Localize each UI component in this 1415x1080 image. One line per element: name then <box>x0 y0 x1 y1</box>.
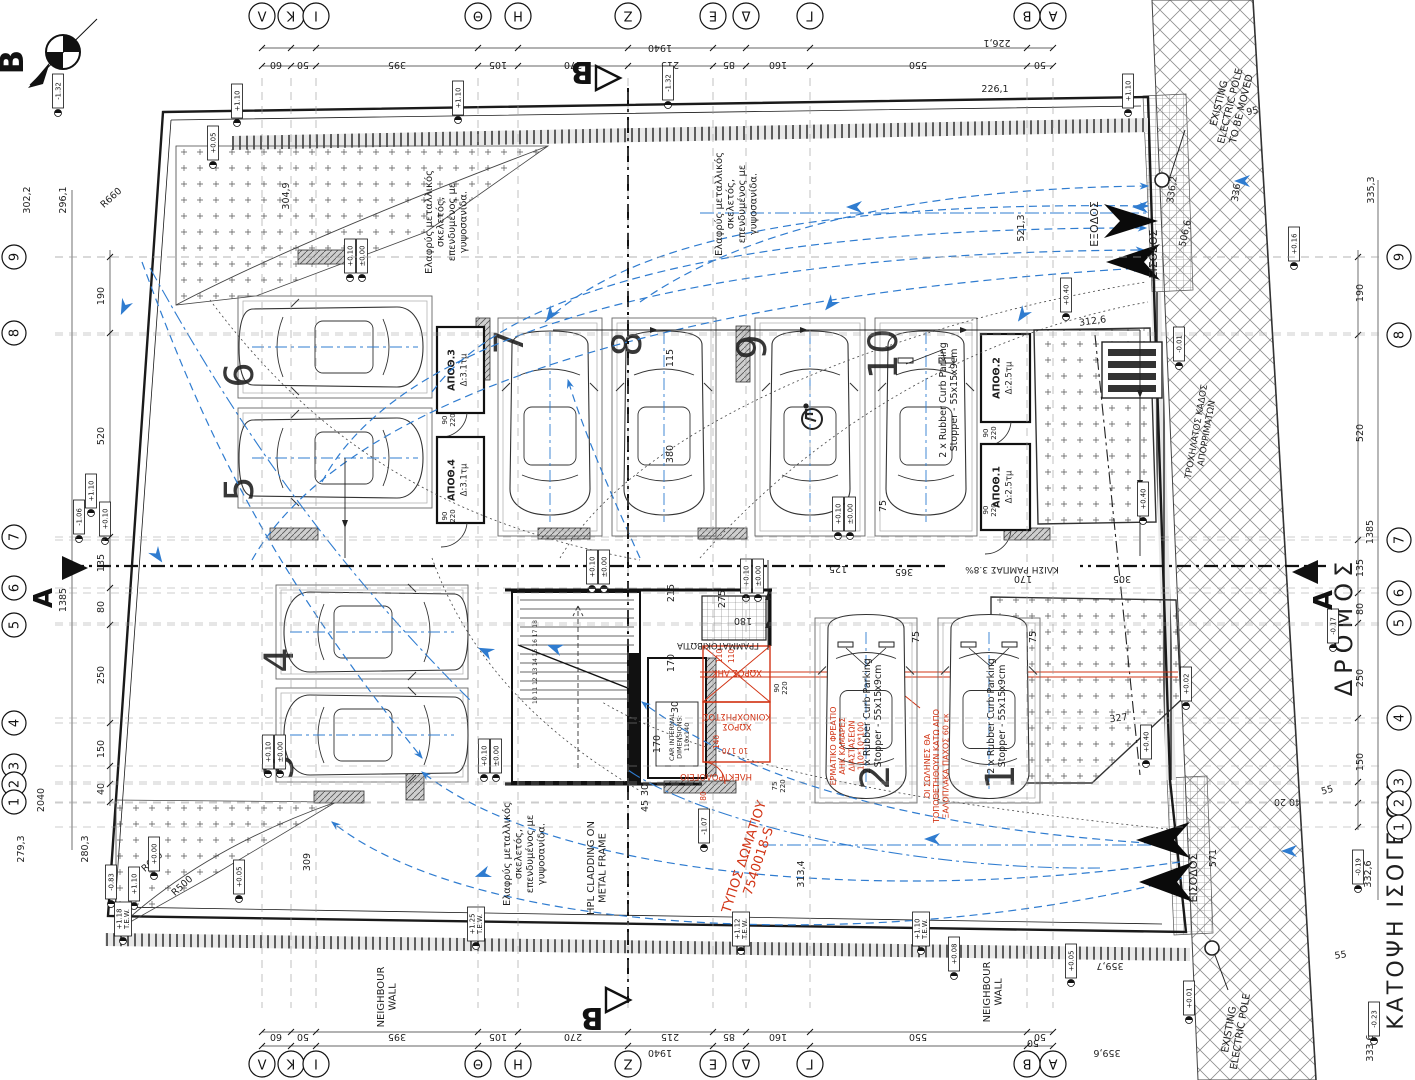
dim-label: 10 170 <box>722 746 748 755</box>
elevation-value: -1.32 <box>665 74 673 92</box>
grid-label-bottom: Γ <box>806 1056 814 1071</box>
grid-label-side: 8 <box>1393 331 1408 339</box>
dim-label: 309 <box>302 853 313 871</box>
elevation-value: +0.10 <box>743 566 751 587</box>
elevation-value: -0.17 <box>1330 617 1338 635</box>
text-line: 2 x Rubber Curb Parking <box>938 342 949 458</box>
text-line: 220 <box>990 503 998 516</box>
elevation-flag: +0.10 <box>345 239 356 282</box>
text-line: T.E.W. <box>741 919 749 940</box>
note-curb-stopper: 2 x Rubber Curb ParkingStopper - 55x15x9… <box>986 658 1008 774</box>
text-line: επενδυμένος με <box>524 815 536 894</box>
elevation-flag: -0.83 <box>106 865 117 908</box>
parking-number: 6 <box>217 362 263 387</box>
dim-label: 20 <box>1274 796 1286 807</box>
elevation-flag: ±0.00 <box>491 739 502 782</box>
dim-label: 304,9 <box>281 182 292 209</box>
elevation-value: +1.12T.E.W. <box>734 919 749 940</box>
elevation-value: +0.10 <box>265 742 273 763</box>
note-neighbour-wall-1: NEIGHBOURWALL <box>376 967 399 1028</box>
text-line: 90 <box>982 429 990 438</box>
text-line: NEIGHBOUR <box>376 967 387 1028</box>
dim-label: 115 <box>665 349 676 367</box>
grid-label-bottom: K <box>286 1056 295 1071</box>
elevation-flag: +0.08 <box>949 937 960 980</box>
dim-label: 280,3 <box>80 835 91 862</box>
grid-label-side: 3 <box>1393 778 1408 786</box>
dim-label: 190 <box>96 287 107 305</box>
section-letter-b: B <box>571 54 594 89</box>
section-marker-b-bottom <box>606 988 630 1012</box>
room-name: ΑΠΟΘ.1 <box>992 466 1003 508</box>
dim-label: 1940 <box>648 42 672 53</box>
elevation-value: +1.10 <box>88 481 96 502</box>
dim-label: 60 <box>270 1031 282 1042</box>
grid-label-side: 1 <box>8 798 23 806</box>
text-line: 220 <box>449 413 457 426</box>
note-hpl-cladding: HPL CLADDING ONMETAL FRAME <box>586 821 609 915</box>
dim-label: 296,1 <box>58 186 69 213</box>
dim-label: 226,1 <box>983 37 1010 48</box>
grid-label-bottom: H <box>513 1056 523 1071</box>
text-line: ΧΩΡΟΣ <box>722 721 752 731</box>
text-line: ΔΙΑΣΤΑΣΕΩΝ <box>847 721 856 772</box>
text-line: γυψοσανίδα. <box>748 173 760 235</box>
dim-label: 160 <box>769 59 787 70</box>
elevation-flag: +0.40 <box>1061 278 1072 321</box>
grill-bar <box>1108 349 1156 356</box>
text-line: 220 <box>990 426 998 439</box>
grill-bar <box>1108 385 1156 392</box>
direction-arrow <box>924 833 940 845</box>
elevation-value: +0.40 <box>1143 732 1151 753</box>
dim-label: 170 <box>666 654 677 672</box>
dim-label: 170 <box>652 735 663 753</box>
parking-number: 10 <box>861 329 907 380</box>
text-line: T.E.W. <box>123 909 131 930</box>
dim-label: 305 <box>1113 573 1131 584</box>
elevation-value: +0.08 <box>951 944 959 965</box>
direction-arrow <box>475 642 495 660</box>
text-line: 220 <box>449 509 457 522</box>
section-marker-a-right <box>1292 560 1318 584</box>
text-line: Ελαφρύς μεταλλικός <box>713 152 725 256</box>
elevation-value: -0.23 <box>1371 1010 1379 1028</box>
text-line: 220 <box>781 681 789 694</box>
direction-arrow <box>148 546 167 566</box>
wall-pier <box>270 528 318 540</box>
dim-label: 50 <box>1027 1037 1039 1048</box>
elevation-value: +1.10 <box>455 88 463 109</box>
elevation-value: ±0.00 <box>359 246 367 267</box>
elevation-flag: +0.10 <box>479 739 490 782</box>
elevation-value: ±0.00 <box>277 742 285 763</box>
room-name: ΑΠΟΘ.2 <box>992 357 1003 399</box>
elevation-value: +0.40 <box>1063 285 1071 306</box>
text-line: 220 <box>779 779 787 792</box>
dim-label: 150 <box>96 740 107 758</box>
grid-label-top: H <box>513 8 523 23</box>
grid-label-bottom: Θ <box>473 1056 483 1071</box>
elevation-value: +1.25T.E.W. <box>469 914 484 935</box>
elevation-value: +0.10 <box>835 504 843 525</box>
text-line: METAL FRAME <box>598 833 609 903</box>
grid-label-bottom: I <box>314 1056 318 1071</box>
wall-pier <box>314 791 364 803</box>
section-marker-a-left <box>62 556 88 580</box>
room-area: Δ:2.5τμ <box>1005 361 1015 394</box>
dim-label: 380 <box>665 445 676 463</box>
parking-number: 9 <box>730 334 776 359</box>
floor-plan-sheet: ΑΠΟΘ.3Δ:3.1τμΑΠΟΘ.4Δ:3.1τμΑΠΟΘ.2Δ:2.5τμΑ… <box>0 0 1415 1080</box>
elevation-value: +0.05 <box>1068 951 1076 972</box>
dim-label: 520 <box>96 427 107 445</box>
grid-label-bottom: Z <box>623 1056 632 1071</box>
grid-label-bottom: A <box>1048 1056 1057 1071</box>
section-marker-b-top <box>596 66 620 90</box>
elevation-value: +0.05 <box>236 867 244 888</box>
note-neighbour-wall-2: NEIGHBOURWALL <box>982 962 1005 1023</box>
grid-label-side: 2 <box>8 780 23 788</box>
dim-label: 50 <box>297 1031 309 1042</box>
grid-label-top: Z <box>623 8 632 23</box>
dim-label: 359,6 <box>1093 1047 1120 1058</box>
path-arrow <box>960 327 968 333</box>
elevation-flag: ±0.00 <box>753 559 764 602</box>
section-letter-a-2: A <box>1309 590 1339 610</box>
dim-label: 335,3 <box>1366 176 1377 203</box>
elevation-value: +1.10 <box>234 91 242 112</box>
text-line: γυψοσανίδα. <box>536 823 548 885</box>
direction-arrow <box>1132 201 1148 213</box>
text-line: σκελετός, <box>435 197 447 247</box>
grid-label-bottom: Δ <box>741 1056 750 1071</box>
elevation-flag: +1.10 <box>453 81 464 124</box>
grid-label-side: 3 <box>8 762 23 770</box>
grid-label-side: 4 <box>1393 714 1408 722</box>
elevation-value: +1.10 <box>1125 81 1133 102</box>
room-area: Δ:2.5τμ <box>1005 470 1015 503</box>
room-name: ΑΠΟΘ.3 <box>447 349 458 391</box>
dim-label: 270 <box>564 1031 582 1042</box>
note-metal-frame-2: Ελαφρύς μεταλλικόςσκελετός,επενδυμένος μ… <box>713 152 760 256</box>
grid-label-top: B <box>1023 8 1032 23</box>
grid-label-top: I <box>314 8 318 23</box>
elevation-value: ±0.00 <box>493 746 501 767</box>
curb-stopper <box>1002 642 1017 647</box>
elevation-value: -1.06 <box>76 508 84 526</box>
text-line: ΤΟΠΟΘΕΤΗΘΟΥΝ ΚΑΤΩ ΑΠΟ <box>932 709 941 824</box>
label-mailboxes: ΓΡΑΜΜΑΤΟΚΙΒΩΤΙΑ <box>677 640 759 650</box>
dim-label: 50 <box>297 59 309 70</box>
elevation-flag: +0.16 <box>1289 227 1300 270</box>
elevation-value: +0.10 <box>347 246 355 267</box>
text-line: WALL <box>388 983 399 1011</box>
text-line: σκελετός, <box>725 179 737 229</box>
dim-label: 75 <box>1028 631 1039 643</box>
section-letter-b-2: B <box>581 1000 604 1035</box>
text-line: ΕΡΜΑΤΙΚΟ ΦΡΕΑΤΙΟ <box>829 707 838 786</box>
elevation-flag: +0.10 <box>741 559 752 602</box>
elevation-flag: +0.05 <box>1066 944 1077 987</box>
section-letter-a: A <box>29 588 59 608</box>
dim-label: 75220 <box>771 779 787 792</box>
elevation-flag: +1.10 <box>1123 74 1134 117</box>
label-entrance-bottom: ΕΙΣΟΔΟΣ <box>1187 853 1200 902</box>
elevation-value: +0.00 <box>151 844 159 865</box>
dim-label: 190 <box>1355 284 1366 302</box>
elevation-flag: +1.10 <box>86 474 97 517</box>
grid-label-side: 5 <box>8 621 23 629</box>
grid-label-top: K <box>286 8 295 23</box>
dim-label: 365 <box>895 566 913 577</box>
curb-stopper <box>838 642 853 647</box>
turning-path <box>545 206 1148 322</box>
elevation-flag: -1.32 <box>663 66 674 109</box>
head <box>803 403 808 408</box>
text-line: 110*10*100 <box>857 722 866 771</box>
text-line: Stopper - 55x15x9cm <box>873 665 884 768</box>
text-line: 2 x Rubber Curb Parking <box>986 658 997 774</box>
grid-label-bottom: B <box>1023 1056 1032 1071</box>
dim-label: 110 <box>727 649 736 664</box>
dim-label: 135 <box>96 554 107 572</box>
elevation-value: -0.01 <box>1176 335 1184 353</box>
path-arrow <box>342 520 348 528</box>
grid-label-top: Γ <box>806 8 814 23</box>
dim-label: 110 <box>715 649 724 664</box>
room-area: Δ:3.1τμ <box>460 353 470 386</box>
text-line: T.E.W. <box>921 919 929 940</box>
dim-label: 55 <box>1334 949 1348 962</box>
dim-label: 55 <box>1320 784 1335 798</box>
text-line: Ελαφρύς μεταλλικός <box>423 170 435 274</box>
dim-label: 226,1 <box>981 84 1008 95</box>
dim-label: 140 <box>712 735 721 750</box>
elevation-flag: ±0.00 <box>845 497 856 540</box>
text-line: 90 <box>441 416 449 425</box>
text-line: Stopper - 55x15x9cm <box>997 665 1008 768</box>
label-ramp-slope: ΚΛΙΣΗ ΡΑΜΠΑΣ 3.8% <box>965 564 1059 574</box>
grid-label-bottom: Λ <box>257 1056 266 1071</box>
dim-label: 80 <box>96 601 107 613</box>
elevation-flag: +0.05 <box>234 860 245 903</box>
note-pipes: ΟΙ ΣΩΛΗΝΕΣ ΘΑΤΟΠΟΘΕΤΗΘΟΥΝ ΚΑΤΩ ΑΠΟΞΑΛΟΠΛ… <box>923 709 950 824</box>
electric-pole-bottom <box>1205 941 1219 955</box>
dim-label: 313,4 <box>796 860 807 887</box>
dim-label: 359,7 <box>1096 960 1123 971</box>
label-exit: ΕΞΟΔΟΣ <box>1088 201 1101 247</box>
grid-label-top: Θ <box>473 8 483 23</box>
dim-label: 279,3 <box>16 835 27 862</box>
grid-label-side: 7 <box>8 533 23 541</box>
dim-label: 30 <box>670 701 681 713</box>
room-name: ΑΠΟΘ.4 <box>447 459 458 501</box>
dim-label: 250 <box>96 666 107 684</box>
dim-label: 75 <box>911 631 922 643</box>
dim-label: 521,3 <box>1016 214 1027 241</box>
dim-label: 332,6 <box>1363 860 1374 887</box>
dim-label: 90220 <box>773 681 789 694</box>
grid-label-top: A <box>1048 8 1057 23</box>
elevation-value: -1.07 <box>701 817 709 835</box>
elevation-value: +1.10T.E.W. <box>914 919 929 940</box>
direction-arrow <box>821 294 840 314</box>
grid-label-side: 1 <box>1393 823 1408 831</box>
dim-label: 520 <box>1355 424 1366 442</box>
elevation-flag: +1.10 <box>232 84 243 127</box>
text-line: Stopper - 55x15x9cm <box>949 349 960 452</box>
dim-label: 85 <box>723 59 735 70</box>
dim-label: 180 <box>734 615 752 626</box>
text-line: Ελαφρύς μεταλλικός <box>501 802 513 906</box>
text-line: 90 <box>982 506 990 515</box>
elevation-value: -0.83 <box>108 873 116 891</box>
label-stair-steps: 10 11 12 13 14 15 16 17 18 <box>532 620 539 704</box>
text-line: 90 <box>773 684 781 693</box>
grill-bar <box>1108 373 1156 380</box>
elevation-value: -1.32 <box>55 82 63 100</box>
north-compass: B <box>0 19 97 88</box>
elevation-value: -0.19 <box>1355 858 1363 876</box>
elevation-value: +1.18T.E.W. <box>116 909 131 930</box>
room-electrical: ΗΛΕΚΤΡΟΛΟΓΕΙΟ <box>680 771 752 781</box>
grid-label-bottom: E <box>709 1056 717 1071</box>
dim-label: 75 <box>878 500 889 512</box>
text-line: WALL <box>994 978 1005 1006</box>
dim-label: 302,2 <box>22 186 33 213</box>
room-ahk: ΧΩΡΟΣ ΑΗΚ <box>712 667 762 677</box>
dim-label: 85 <box>723 1031 735 1042</box>
grid-label-top: Λ <box>257 8 266 23</box>
dim-label: 2040 <box>36 788 47 812</box>
elevation-value: +0.16 <box>1291 234 1299 255</box>
dim-label: 80 <box>699 791 708 801</box>
text-line: 75 <box>771 782 779 791</box>
curb-stopper <box>961 642 976 647</box>
dim-label: 40 <box>96 783 107 795</box>
elevation-value: +1.10 <box>131 874 139 895</box>
dim-label: 275 <box>717 590 728 608</box>
direction-arrow <box>1013 305 1032 325</box>
elevation-value: +0.10 <box>589 557 597 578</box>
room-area: Δ:3.1τμ <box>460 463 470 496</box>
floor-plan-svg: ΑΠΟΘ.3Δ:3.1τμΑΠΟΘ.4Δ:3.1τμΑΠΟΘ.2Δ:2.5τμΑ… <box>0 0 1415 1080</box>
dim-label: 1385 <box>1365 520 1376 544</box>
grid-label-side: 9 <box>1393 253 1408 261</box>
top-wall-band <box>232 118 1148 150</box>
dim-label: 395 <box>388 59 406 70</box>
dim-label: 550 <box>909 59 927 70</box>
elevation-value: +0.05 <box>210 133 218 154</box>
text-line: επενδυμένος με <box>446 183 458 262</box>
text-line: NEIGHBOUR <box>982 962 993 1023</box>
elevation-flag: +0.40 <box>1141 725 1152 768</box>
grid-label-side: 7 <box>1393 536 1408 544</box>
dim-label: 160 <box>769 1031 787 1042</box>
dim-label: 40 <box>1289 796 1301 807</box>
direction-arrow <box>846 201 862 213</box>
elevation-value: ±0.00 <box>847 504 855 525</box>
elevation-flag: ±0.00 <box>357 239 368 282</box>
elevation-value: ±0.00 <box>601 557 609 578</box>
text-line: T.E.W. <box>476 914 484 935</box>
direction-arrow <box>115 298 133 318</box>
dim-label: 90220 <box>982 426 998 439</box>
dim-label: R660 <box>98 186 124 211</box>
dim-label: 105 <box>489 1031 507 1042</box>
grid-label-side: 4 <box>8 719 23 727</box>
elevation-flag: ±0.00 <box>599 550 610 593</box>
wall-pier <box>538 528 590 539</box>
dim-label: 125 <box>829 563 847 574</box>
dim-label: 312,6 <box>1078 314 1106 329</box>
elevation-flag: -1.32 <box>53 74 64 117</box>
grid-label-top: Δ <box>741 8 750 23</box>
grid-label-side: 2 <box>1393 799 1408 807</box>
dim-label: 395 <box>388 1031 406 1042</box>
grid-label-side: 5 <box>1393 619 1408 627</box>
dim-label: 215 <box>661 1031 679 1042</box>
elevation-value: +0.40 <box>1140 489 1148 510</box>
dim-label: 90220 <box>441 413 457 426</box>
dim-label: 60 <box>270 59 282 70</box>
note-room-type: ΤΥΠΟΣ ΔΩΜΑΤΙΟΥ7540018-S <box>719 799 784 921</box>
text-line: σκελετός, <box>513 829 525 879</box>
direction-arrow <box>473 866 492 883</box>
north-letter: B <box>0 50 31 74</box>
dim-label: 1385 <box>58 588 69 612</box>
grid-label-side: 6 <box>8 584 23 592</box>
grid-label-side: 9 <box>8 253 23 261</box>
elevation-value: +0.01 <box>1186 988 1194 1009</box>
door-swing <box>441 523 467 547</box>
dim-label: 50 <box>1034 59 1046 70</box>
text-line: HPL CLADDING ON <box>586 821 597 915</box>
elevation-flag: -1.07 <box>699 809 710 852</box>
elevation-flag: +0.10 <box>587 550 598 593</box>
dim-label: 30 <box>640 784 651 796</box>
grid-label-side: 8 <box>8 329 23 337</box>
grid-label-side: 6 <box>1393 589 1408 597</box>
wall-pier <box>698 528 747 539</box>
elevation-flag: -1.06 <box>74 500 85 543</box>
curb-stopper <box>879 642 894 647</box>
text-line: 110x140 <box>683 723 691 752</box>
elevation-value: ±0.00 <box>755 566 763 587</box>
text-line: γυψοσανίδα. <box>458 191 470 253</box>
dim-label: 1940 <box>648 1047 672 1058</box>
dim-label: 571 <box>1208 849 1219 867</box>
elevation-flag: -0.19 <box>1353 850 1364 893</box>
elevation-value: +0.10 <box>481 746 489 767</box>
elevation-flag: +0.10 <box>833 497 844 540</box>
elevation-value: +0.02 <box>1183 674 1191 695</box>
dim-label: 105 <box>489 59 507 70</box>
grid-label-top: E <box>709 8 717 23</box>
elevation-value: +0.10 <box>102 509 110 530</box>
note-metal-frame-3: Ελαφρύς μεταλλικόςσκελετός,επενδυμένος μ… <box>501 802 548 906</box>
note-curb-stopper: 2 x Rubber Curb ParkingStopper - 55x15x9… <box>938 342 960 458</box>
elevation-flag: +0.01 <box>1184 981 1195 1024</box>
dim-label: 550 <box>909 1031 927 1042</box>
dim-label: 150 <box>1355 753 1366 771</box>
grill-bar <box>1108 361 1156 368</box>
label-entrance-top: ΕΙΣΟΔΟΣ <box>1147 229 1160 278</box>
text-line: 90 <box>441 512 449 521</box>
parking-number: 4 <box>257 647 303 672</box>
